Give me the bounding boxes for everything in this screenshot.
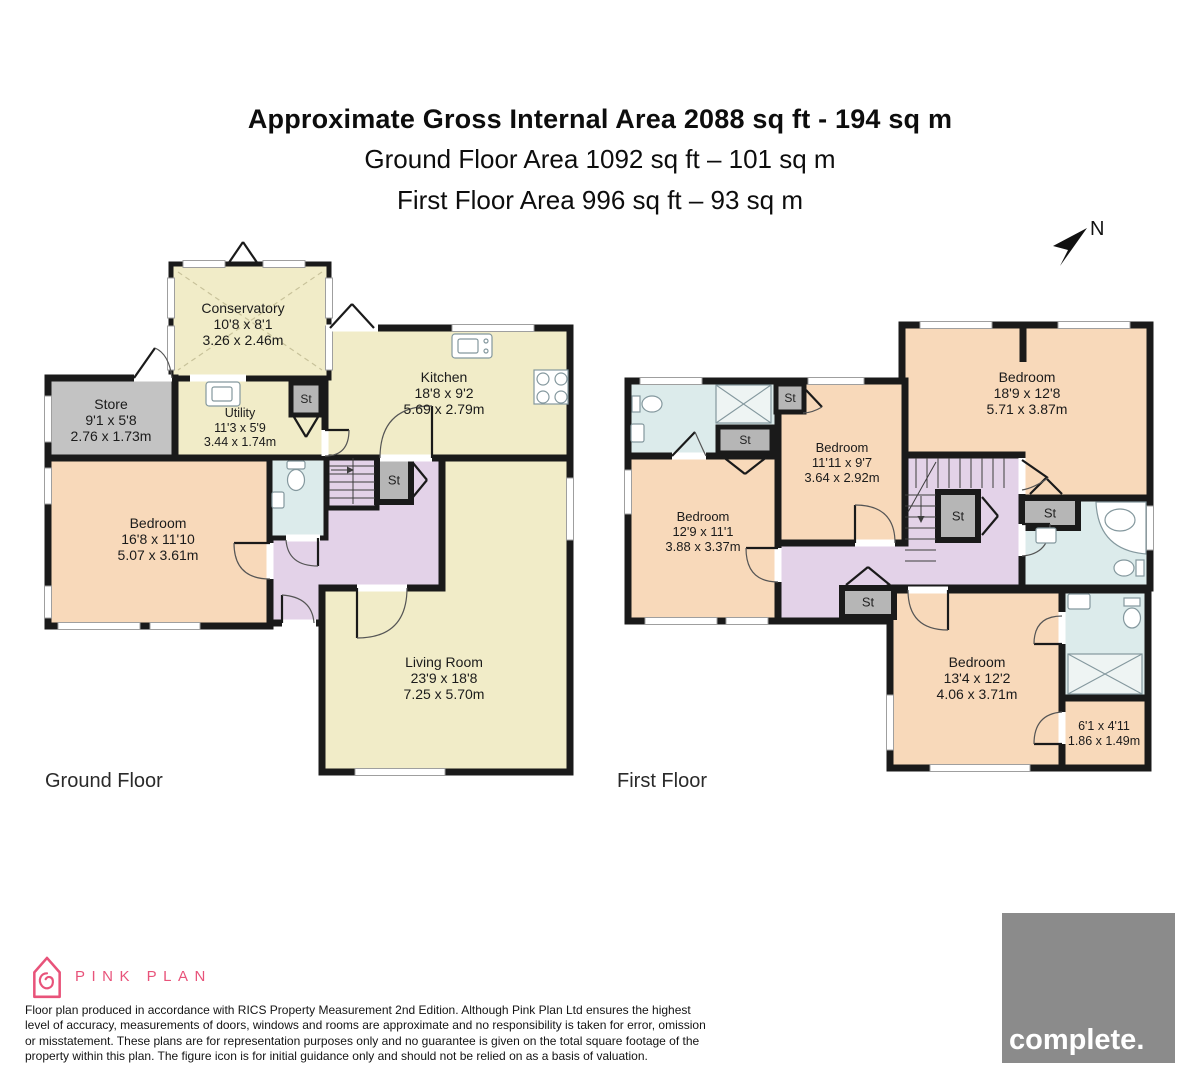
toilet-icon [632,396,662,412]
window [45,468,52,504]
window [920,322,992,329]
closet-label: St [1044,506,1056,521]
window [887,695,894,750]
sink-icon [1068,594,1090,609]
floor-plan-page: { "title": { "line1": "Approximate Gross… [0,0,1200,1088]
north-label: N [1090,218,1104,241]
window [726,618,768,625]
toilet-icon [1114,560,1144,576]
disclaimer-text: Floor plan produced in accordance with R… [25,1003,707,1064]
toilet-icon [287,461,305,491]
room-label-store: Store 9'1 x 5'8 2.76 x 1.73m [71,396,152,444]
sink-icon [272,492,284,508]
room-label-kitchen: Kitchen 18'8 x 9'2 5.69 x 2.79m [404,369,485,417]
title-line-first-area: First Floor Area 996 sq ft – 93 sq m [0,185,1200,216]
toilet-icon [1124,598,1141,628]
window [625,470,632,514]
window [168,278,175,318]
window [645,618,717,625]
room-label-bedroom3: Bedroom 12'9 x 11'1 3.88 x 3.37m [665,509,740,554]
window [326,326,333,370]
window [150,623,200,630]
north-arrow-icon [1053,228,1087,266]
page-title: Approximate Gross Internal Area 2088 sq … [0,104,1200,216]
title-line-ground-area: Ground Floor Area 1092 sq ft – 101 sq m [0,144,1200,175]
agency-logo: complete. [1002,913,1175,1063]
title-line-total-area: Approximate Gross Internal Area 2088 sq … [0,104,1200,135]
shower-icon [1068,654,1142,694]
window [808,378,864,385]
window [1147,506,1154,550]
room-label-small-room: 6'1 x 4'11 1.86 x 1.49m [1068,719,1140,748]
shower-icon [716,385,771,423]
sink-icon [1036,528,1056,543]
room-label-ground-bedroom: Bedroom 16'8 x 11'10 5.07 x 3.61m [118,515,199,563]
closet-label: St [862,595,874,610]
window [1058,322,1130,329]
hob-icon [534,370,568,404]
room-label-bedroom4: Bedroom 13'4 x 12'2 4.06 x 3.71m [937,654,1018,702]
closet-label: St [952,509,964,524]
closet-label: St [388,473,400,488]
window [355,769,445,776]
room-label-bedroom2: Bedroom 11'11 x 9'7 3.64 x 2.92m [804,440,879,485]
window [930,765,1030,772]
closet-label: St [784,391,795,405]
pink-plan-house-icon [28,950,66,1002]
room-label-utility: Utility 11'3 x 5'9 3.44 x 1.74m [204,406,276,450]
ground-floor-label: Ground Floor [45,770,163,793]
room-label-bedroom1: Bedroom 18'9 x 12'8 5.71 x 3.87m [987,369,1068,417]
window [567,478,574,540]
window [640,378,702,385]
ground-floor-plan [45,242,574,776]
sink-icon [631,424,644,442]
window [263,261,305,268]
sink-icon [206,382,240,406]
closet-label: St [739,433,750,447]
room-label-living-room: Living Room 23'9 x 18'8 7.25 x 5.70m [404,654,485,702]
window [45,396,52,442]
first-floor-label: First Floor [617,770,707,793]
closet-label: St [300,392,311,406]
window [45,586,52,618]
window [326,278,333,318]
agency-logo-text: complete. [1009,1024,1144,1057]
sink-icon [452,334,492,358]
pink-plan-brand-name: PINK PLAN [75,968,212,985]
window [452,325,534,332]
window [183,261,225,268]
window [58,623,140,630]
room-label-conservatory: Conservatory 10'8 x 8'1 3.26 x 2.46m [201,300,284,348]
